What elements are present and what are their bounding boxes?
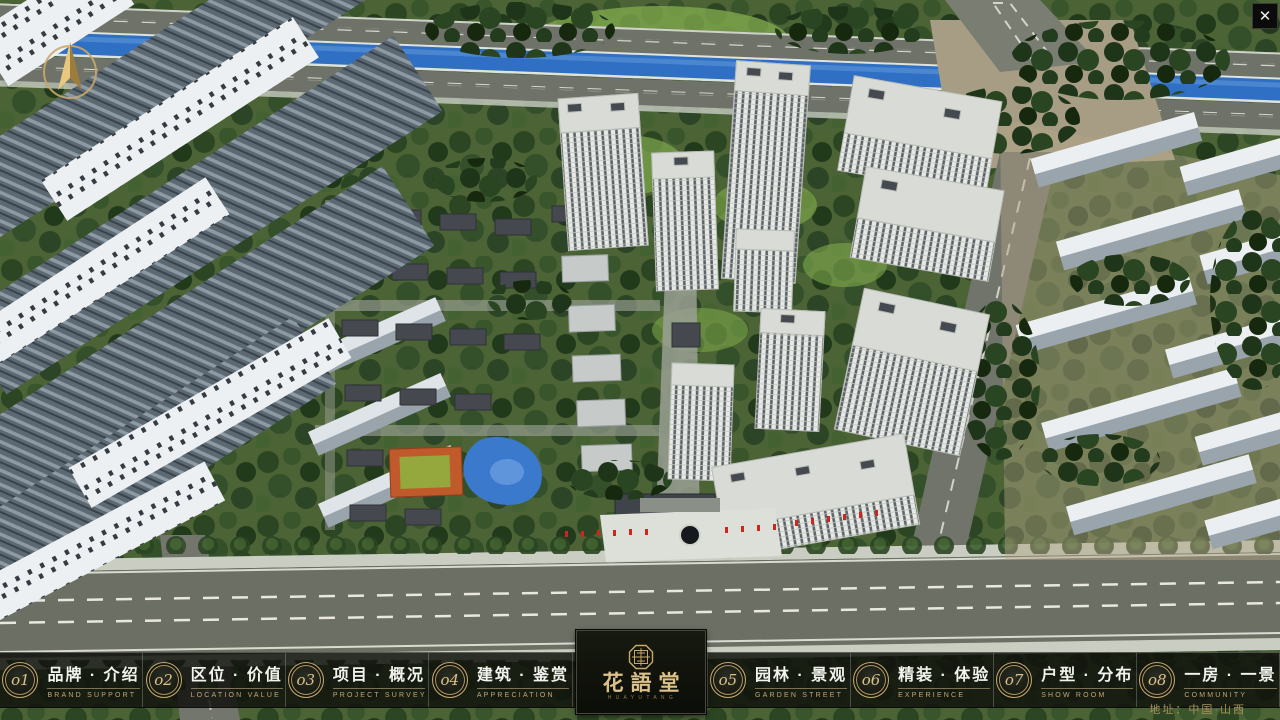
nav-number-badge: o8: [1139, 662, 1175, 698]
nav-label-en: EXPERIENCE: [898, 692, 965, 699]
nav-label-zh: 园林 · 景观: [755, 661, 847, 689]
nav-label-zh: 一房 · 一景: [1184, 661, 1276, 689]
nav-label-en: PROJECT SURVEY: [333, 692, 427, 699]
nav-label-en: APPRECIATION: [477, 692, 555, 699]
brand-logo-panel[interactable]: 花語堂 H U A Y U T A N G: [576, 630, 706, 714]
brand-name: 花語堂: [596, 672, 687, 693]
nav-number-badge: o7: [996, 662, 1032, 698]
nav-label-en: SHOW ROOM: [1041, 692, 1106, 699]
brand-seal-icon: [628, 644, 654, 670]
nav-number-badge: o3: [288, 662, 324, 698]
aerial-masterplan-render: [0, 0, 1280, 720]
nav-item-floorplan[interactable]: o7 户型 · 分布SHOW ROOM: [993, 653, 1136, 707]
close-icon: ✕: [1259, 7, 1272, 25]
nav-item-interior[interactable]: o6 精装 · 体验EXPERIENCE: [850, 653, 993, 707]
project-address: 地址：中国·山西: [1149, 701, 1246, 717]
nav-number-badge: o2: [146, 662, 182, 698]
nav-item-garden[interactable]: o5 园林 · 景观GARDEN STREET: [707, 653, 850, 707]
nav-number-badge: o4: [432, 662, 468, 698]
nav-label-zh: 建筑 · 鉴赏: [477, 661, 569, 689]
close-button[interactable]: ✕: [1252, 3, 1278, 29]
nav-item-architecture[interactable]: o4 建筑 · 鉴赏APPRECIATION: [428, 653, 572, 707]
nav-label-en: COMMUNITY: [1184, 692, 1247, 699]
nav-item-views[interactable]: o8 一房 · 一景COMMUNITY: [1136, 653, 1280, 707]
nav-number-badge: o1: [2, 662, 38, 698]
compass-north-icon: [38, 34, 102, 102]
nav-label-en: LOCATION VALUE: [191, 692, 281, 699]
nav-label-zh: 户型 · 分布: [1041, 661, 1133, 689]
nav-label-en: BRAND SUPPORT: [47, 692, 136, 699]
nav-item-project[interactable]: o3 项目 · 概况PROJECT SURVEY: [285, 653, 428, 707]
nav-number-badge: o6: [853, 662, 889, 698]
nav-number-badge: o5: [710, 662, 746, 698]
nav-label-zh: 项目 · 概况: [333, 661, 425, 689]
nav-label-zh: 区位 · 价值: [191, 661, 283, 689]
nav-item-brand[interactable]: o1 品牌 · 介绍BRAND SUPPORT: [0, 653, 142, 707]
nav-item-location[interactable]: o2 区位 · 价值LOCATION VALUE: [142, 653, 285, 707]
brand-subtitle: H U A Y U T A N G: [608, 695, 675, 701]
nav-label-zh: 品牌 · 介绍: [47, 661, 139, 689]
sales-display-screen: ✕ o1 品牌 · 介绍BRAND SUPPORT o2 区位 · 价值LOCA…: [0, 0, 1280, 720]
nav-label-zh: 精装 · 体验: [898, 661, 990, 689]
nav-label-en: GARDEN STREET: [755, 692, 843, 699]
